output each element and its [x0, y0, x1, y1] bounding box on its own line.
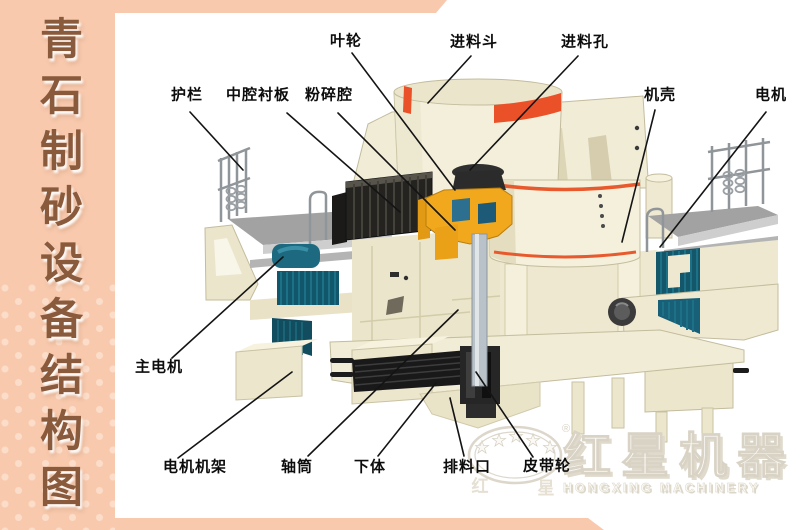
- motor-frame-box: [236, 346, 302, 400]
- leader-line-motor-frame: [178, 372, 292, 458]
- cavity-liner: [332, 172, 432, 245]
- title-sidebar: 青石制砂设备结构图: [0, 0, 115, 530]
- star-icon: ★: [474, 438, 489, 457]
- machine-cutaway-illustration: ★ ★ ★ ★ ★ ® 红 星 红星机器 红星机器 HONGXING MACHI…: [0, 0, 800, 530]
- logo-cn-text: 红星机器: [563, 430, 795, 483]
- seal-char-left: 红: [472, 476, 489, 496]
- star-icon: ★: [525, 431, 540, 450]
- vertical-shaft: [472, 234, 487, 386]
- star-icon: ★: [508, 427, 523, 446]
- seal-char-right: 星: [538, 479, 555, 498]
- leader-line-guardrail: [190, 112, 243, 170]
- logo-en-text: HONGXING MACHINERY: [563, 481, 760, 495]
- star-icon: ★: [491, 431, 506, 450]
- star-icon: ★: [542, 438, 557, 457]
- page: ★ ★ ★ ★ ★ ® 红 星 红星机器 红星机器 HONGXING MACHI…: [0, 0, 800, 530]
- page-title: 青石制砂设备结构图: [27, 16, 89, 520]
